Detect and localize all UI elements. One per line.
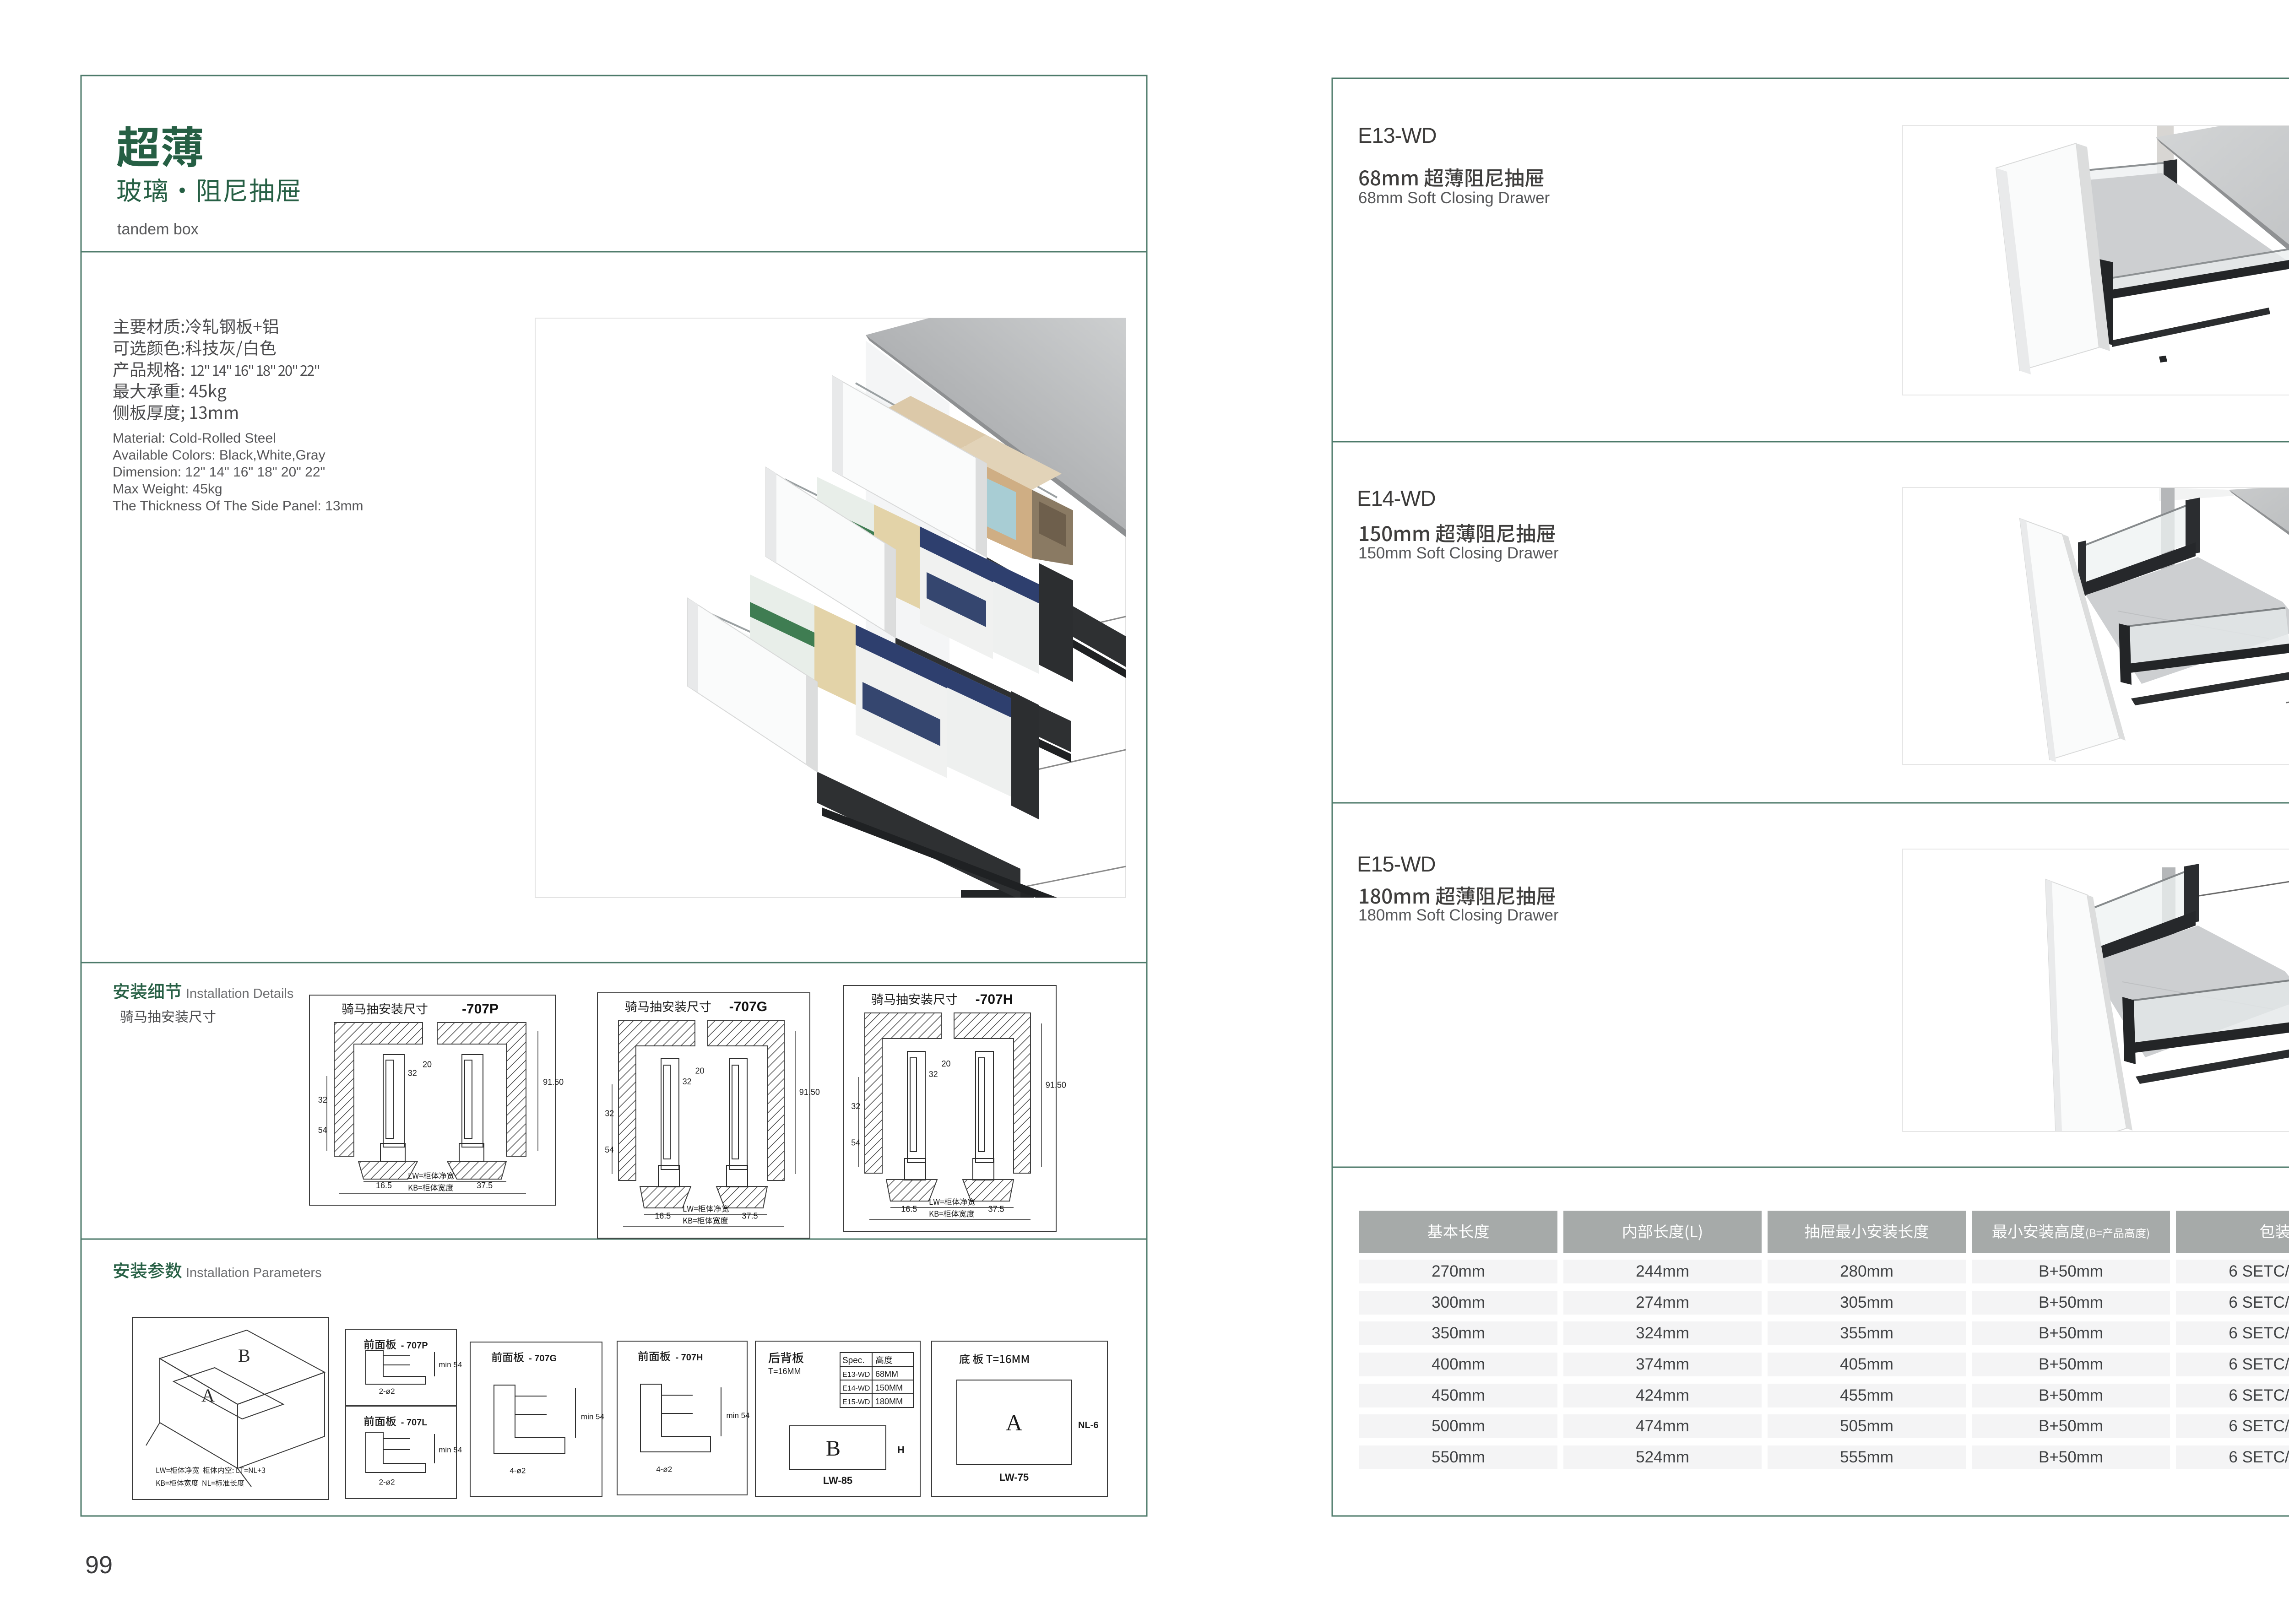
svg-text:- 707P: - 707P xyxy=(401,1341,428,1351)
svg-text:Installation Details: Installation Details xyxy=(186,986,293,1001)
svg-text:Max Weight: 45kg: Max Weight: 45kg xyxy=(113,482,222,497)
svg-text:32: 32 xyxy=(851,1102,860,1111)
svg-text:Spec.: Spec. xyxy=(842,1356,865,1365)
svg-text:- 707H: - 707H xyxy=(675,1353,703,1363)
svg-text:37.5: 37.5 xyxy=(477,1181,493,1190)
svg-text:6 SETC/TNB: 6 SETC/TNB xyxy=(2229,1417,2289,1435)
svg-text:B+50mm: B+50mm xyxy=(2039,1355,2103,1373)
svg-text:tandem box: tandem box xyxy=(117,221,199,238)
svg-text:Available Colors: Black,White,: Available Colors: Black,White,Gray xyxy=(113,448,325,463)
svg-text:A: A xyxy=(201,1385,215,1406)
svg-text:B+50mm: B+50mm xyxy=(2039,1262,2103,1280)
svg-text:20: 20 xyxy=(941,1059,950,1068)
svg-text:LW-85: LW-85 xyxy=(823,1475,852,1486)
svg-text:150mm Soft Closing Drawer: 150mm Soft Closing Drawer xyxy=(1358,544,1559,562)
svg-text:68MM: 68MM xyxy=(875,1370,898,1379)
svg-text:E15-WD: E15-WD xyxy=(842,1398,870,1406)
svg-text:H: H xyxy=(897,1444,905,1456)
svg-text:6 SETC/TNB: 6 SETC/TNB xyxy=(2229,1448,2289,1466)
svg-text:32: 32 xyxy=(318,1095,327,1104)
svg-text:E14-WD: E14-WD xyxy=(842,1385,870,1392)
svg-text:32: 32 xyxy=(408,1069,417,1078)
svg-text:37.5: 37.5 xyxy=(988,1204,1004,1213)
svg-text:99: 99 xyxy=(85,1551,113,1579)
svg-text:54: 54 xyxy=(605,1145,614,1154)
svg-text:B+50mm: B+50mm xyxy=(2039,1448,2103,1466)
svg-text:54: 54 xyxy=(851,1138,860,1148)
svg-text:min 54: min 54 xyxy=(439,1445,462,1454)
svg-text:32: 32 xyxy=(929,1070,938,1079)
svg-text:min 54: min 54 xyxy=(727,1411,750,1420)
svg-text:-707P: -707P xyxy=(462,1001,499,1017)
svg-text:2-ø2: 2-ø2 xyxy=(379,1387,395,1396)
svg-text:6 SETC/TNB: 6 SETC/TNB xyxy=(2229,1294,2289,1311)
svg-text:450mm: 450mm xyxy=(1432,1386,1485,1404)
svg-text:min 54: min 54 xyxy=(439,1360,462,1369)
svg-text:270mm: 270mm xyxy=(1432,1262,1485,1280)
svg-text:NL-6: NL-6 xyxy=(1078,1420,1098,1430)
svg-text:-707H: -707H xyxy=(976,992,1013,1007)
svg-text:6 SETC/TNB: 6 SETC/TNB xyxy=(2229,1386,2289,1404)
svg-text:374mm: 374mm xyxy=(1636,1355,1689,1373)
svg-text:16.5: 16.5 xyxy=(376,1181,392,1190)
svg-text:324mm: 324mm xyxy=(1636,1324,1689,1342)
svg-text:91.50: 91.50 xyxy=(543,1077,564,1087)
svg-text:180MM: 180MM xyxy=(875,1397,903,1406)
svg-text:B: B xyxy=(826,1436,841,1461)
svg-text:244mm: 244mm xyxy=(1636,1262,1689,1280)
svg-text:505mm: 505mm xyxy=(1840,1417,1893,1435)
svg-text:4-ø2: 4-ø2 xyxy=(510,1466,526,1475)
svg-text:350mm: 350mm xyxy=(1432,1324,1485,1342)
svg-text:500mm: 500mm xyxy=(1432,1417,1485,1435)
svg-text:The Thickness Of The Side Pane: The Thickness Of The Side Panel: 13mm xyxy=(113,498,363,514)
svg-text:32: 32 xyxy=(683,1077,692,1086)
svg-text:16.5: 16.5 xyxy=(901,1204,917,1213)
svg-text:E13-WD: E13-WD xyxy=(842,1371,870,1379)
svg-text:54: 54 xyxy=(318,1126,327,1135)
svg-text:32: 32 xyxy=(605,1109,614,1118)
svg-text:400mm: 400mm xyxy=(1432,1355,1485,1373)
svg-text:68mm Soft Closing Drawer: 68mm Soft Closing Drawer xyxy=(1358,189,1550,207)
svg-text:B+50mm: B+50mm xyxy=(2039,1294,2103,1311)
svg-text:- 707L: - 707L xyxy=(401,1418,428,1428)
svg-text:A: A xyxy=(1006,1410,1022,1435)
svg-text:min 54: min 54 xyxy=(581,1413,604,1421)
svg-text:LW-75: LW-75 xyxy=(999,1472,1029,1483)
svg-text:16.5: 16.5 xyxy=(655,1211,671,1220)
svg-text:274mm: 274mm xyxy=(1636,1294,1689,1311)
svg-text:4-ø2: 4-ø2 xyxy=(656,1465,672,1474)
svg-text:20: 20 xyxy=(423,1060,432,1069)
svg-text:B: B xyxy=(238,1345,250,1366)
svg-text:355mm: 355mm xyxy=(1840,1324,1893,1342)
svg-text:B+50mm: B+50mm xyxy=(2039,1386,2103,1404)
svg-text:305mm: 305mm xyxy=(1840,1294,1893,1311)
svg-text:91.50: 91.50 xyxy=(799,1088,820,1097)
svg-text:6 SETC/TNB: 6 SETC/TNB xyxy=(2229,1262,2289,1280)
svg-text:91.50: 91.50 xyxy=(1046,1080,1066,1089)
svg-text:455mm: 455mm xyxy=(1840,1386,1893,1404)
svg-text:Installation Parameters: Installation Parameters xyxy=(186,1266,322,1280)
svg-text:E15-WD: E15-WD xyxy=(1357,852,1436,876)
svg-text:424mm: 424mm xyxy=(1636,1386,1689,1404)
svg-text:524mm: 524mm xyxy=(1636,1448,1689,1466)
svg-text:Dimension: 12" 14" 16" 18" 20": Dimension: 12" 14" 16" 18" 20" 22" xyxy=(113,465,325,480)
svg-text:280mm: 280mm xyxy=(1840,1262,1893,1280)
svg-text:474mm: 474mm xyxy=(1636,1417,1689,1435)
svg-text:180mm Soft Closing Drawer: 180mm Soft Closing Drawer xyxy=(1358,906,1559,924)
svg-text:550mm: 550mm xyxy=(1432,1448,1485,1466)
svg-text:E14-WD: E14-WD xyxy=(1357,486,1436,510)
svg-text:-707G: -707G xyxy=(729,999,767,1014)
svg-text:B+50mm: B+50mm xyxy=(2039,1324,2103,1342)
svg-text:6 SETC/TNB: 6 SETC/TNB xyxy=(2229,1355,2289,1373)
svg-text:B+50mm: B+50mm xyxy=(2039,1417,2103,1435)
svg-text:555mm: 555mm xyxy=(1840,1448,1893,1466)
svg-text:2-ø2: 2-ø2 xyxy=(379,1478,395,1487)
svg-text:6 SETC/TNB: 6 SETC/TNB xyxy=(2229,1324,2289,1342)
svg-text:405mm: 405mm xyxy=(1840,1355,1893,1373)
svg-text:Material: Cold-Rolled Steel: Material: Cold-Rolled Steel xyxy=(113,431,276,446)
svg-text:20: 20 xyxy=(695,1066,704,1076)
svg-text:- 707G: - 707G xyxy=(529,1353,557,1364)
svg-text:150MM: 150MM xyxy=(875,1383,903,1392)
svg-text:300mm: 300mm xyxy=(1432,1294,1485,1311)
svg-text:E13-WD: E13-WD xyxy=(1358,123,1437,147)
svg-text:37.5: 37.5 xyxy=(742,1211,758,1220)
svg-text:T=16MM: T=16MM xyxy=(768,1367,801,1376)
